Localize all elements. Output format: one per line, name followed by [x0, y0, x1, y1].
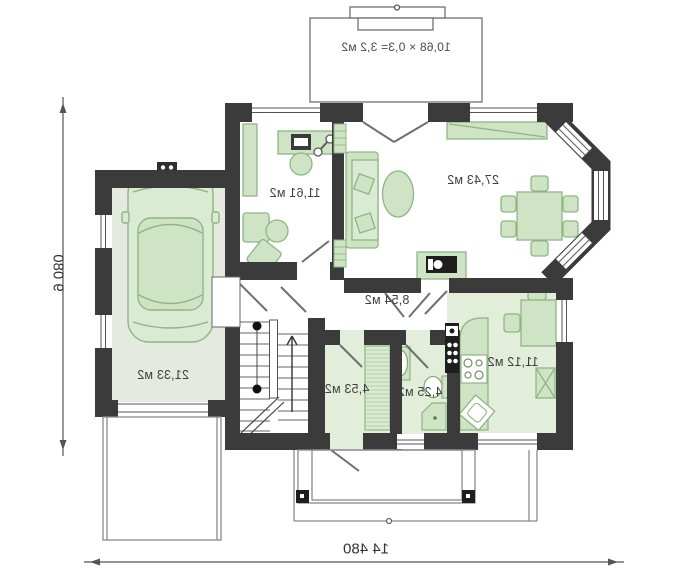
- chair-icon: [531, 176, 548, 191]
- room-label-kitchen: 11,12 м2: [488, 355, 539, 369]
- staircase: [240, 320, 308, 438]
- newel-post: [253, 322, 262, 331]
- rug-icon: [383, 171, 414, 217]
- floor-plan-drawing: [0, 0, 700, 575]
- chair-icon: [563, 196, 578, 212]
- kitchen-table-icon: [521, 300, 556, 346]
- dimension-bottom: [84, 559, 624, 566]
- room-label-vestibule: 4,53 м2: [325, 382, 370, 396]
- chair-icon: [504, 314, 520, 332]
- room-label-bathroom: 4,25 м2: [398, 385, 443, 399]
- dimension-width-label: 14 480: [343, 541, 389, 558]
- stairs-direction-arrow: [287, 336, 297, 412]
- chair-icon: [501, 221, 516, 237]
- car-icon: [122, 172, 219, 342]
- desk-chair-icon: [290, 153, 312, 175]
- driveway: [103, 417, 221, 540]
- stove-icon: [461, 355, 487, 383]
- chair-icon: [501, 196, 516, 212]
- side-table-icon: [266, 220, 288, 242]
- terrace-area-note: 10,68 × 0,3= 3,2 м2: [341, 40, 450, 54]
- fireplace-icon: [417, 252, 466, 279]
- room-label-office: 11,61 м2: [270, 186, 321, 200]
- armchair-icon: [243, 213, 269, 242]
- fridge-icon: [445, 323, 459, 373]
- room-label-hall: 8,54 м2: [365, 293, 410, 307]
- chair-icon: [563, 221, 578, 237]
- living-furniture: [346, 122, 578, 256]
- computer-icon: [291, 134, 311, 150]
- room-label-garage: 21,33 м2: [137, 368, 189, 382]
- chair-icon: [531, 241, 548, 256]
- shelf-icon: [243, 124, 257, 196]
- porch: [294, 450, 537, 524]
- dimension-depth-label: 9 080: [50, 254, 67, 292]
- room-label-living-room: 27,43 м2: [447, 173, 499, 187]
- dining-table-icon: [517, 192, 562, 240]
- newel-post: [253, 385, 262, 394]
- floor-plan: 10,68 × 0,3= 3,2 м2 11,61 м2 27,43 м2 21…: [0, 0, 700, 575]
